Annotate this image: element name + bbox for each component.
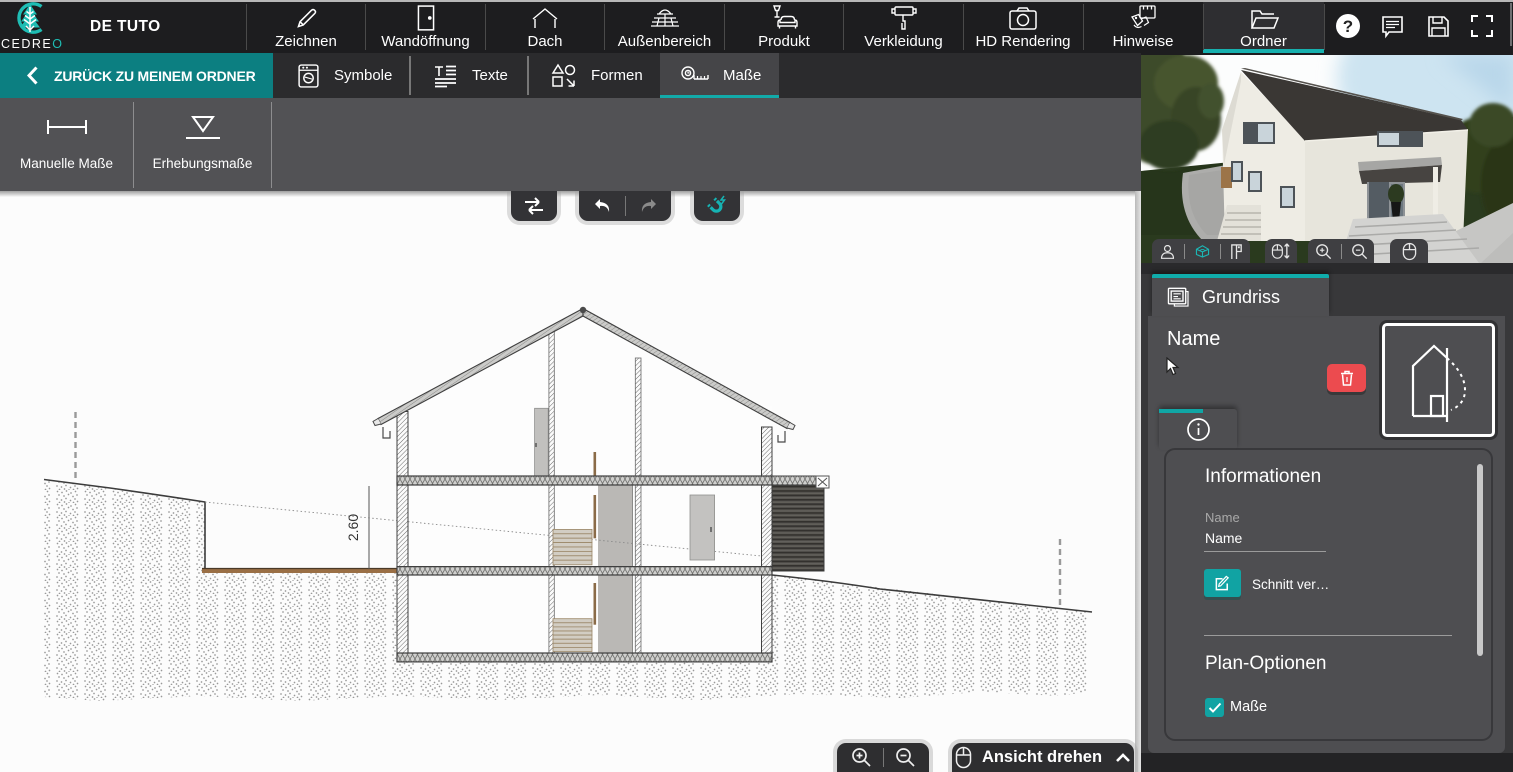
svg-text:?: ? [1343, 17, 1353, 36]
svg-text:2.60: 2.60 [345, 514, 361, 541]
